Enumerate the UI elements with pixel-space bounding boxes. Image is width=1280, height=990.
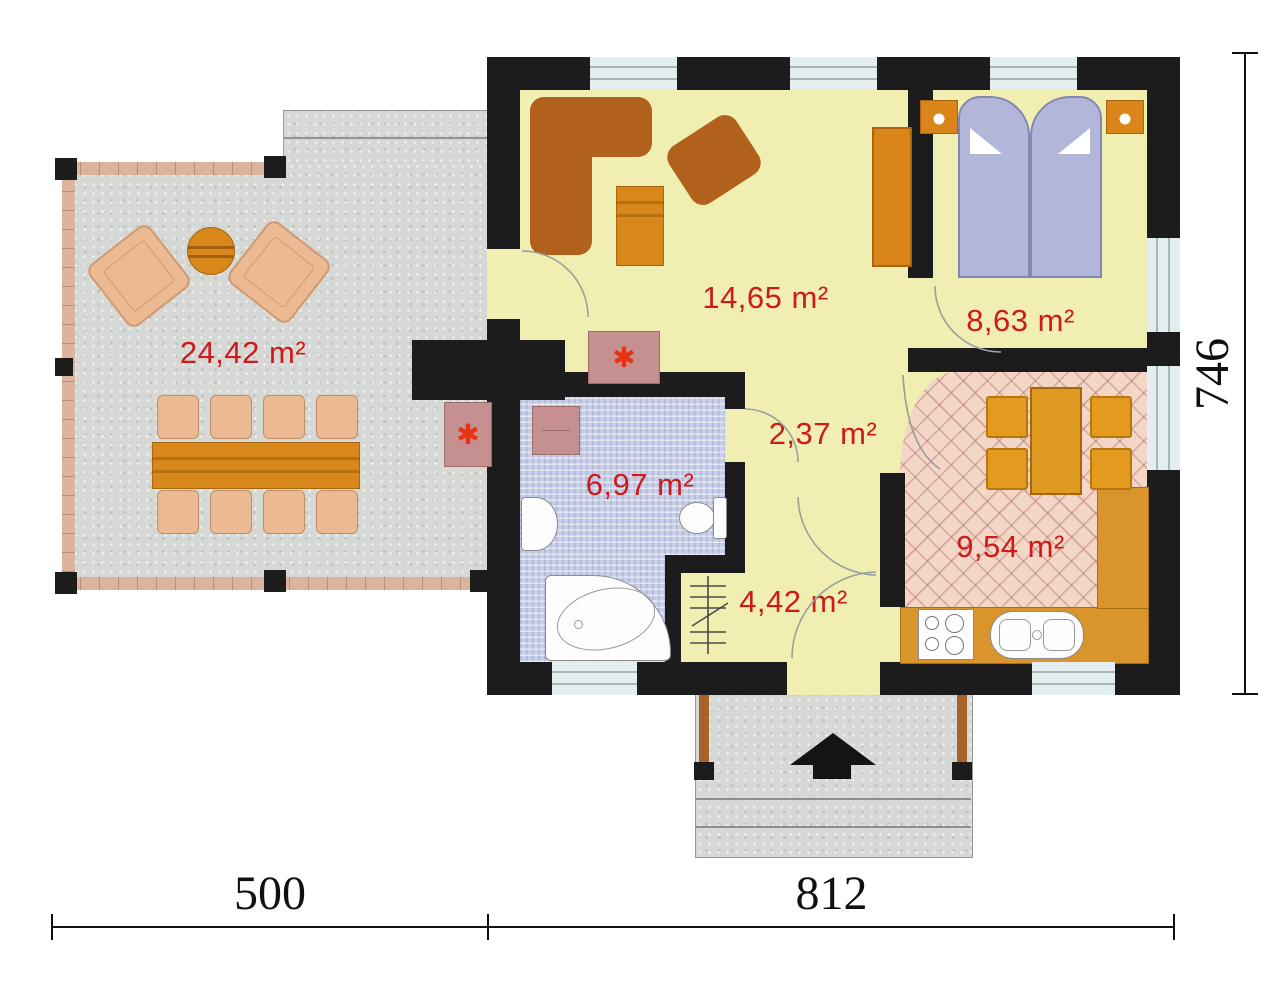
porch-step-line [695, 826, 971, 828]
living-room-area-label: 14,65 m² [638, 280, 893, 316]
dimension-tick [1232, 693, 1258, 695]
porch-post [699, 695, 709, 765]
terrace-chair [316, 395, 358, 439]
terrace-post [264, 156, 286, 178]
wall-entry-kitchen [880, 473, 905, 607]
washing-machine [532, 406, 580, 455]
walkway [283, 110, 489, 164]
sofa-corner-leg [530, 97, 592, 255]
dimension-house-height: 746 [1185, 314, 1235, 434]
living-wardrobe [872, 127, 912, 267]
porch-post-base [694, 762, 714, 780]
terrace-area-label: 24,42 m² [117, 335, 369, 371]
terrace-chair [263, 490, 305, 534]
terrace-post [264, 570, 286, 592]
entrance-arrow-icon [790, 733, 876, 765]
kitchen-sink [990, 611, 1084, 659]
dimension-line-bottom [52, 926, 1175, 928]
terrace-chair [210, 395, 252, 439]
terrace-grill: ✱ [444, 402, 492, 467]
nightstand [920, 100, 958, 134]
window-top-bedroom [990, 57, 1077, 90]
entry-area-label: 4,42 m² [716, 584, 871, 620]
window-bottom-kitchen [1032, 662, 1115, 695]
entrance-arrow-stem [813, 765, 851, 779]
bedroom-area-label: 8,63 m² [938, 303, 1103, 339]
terrace-chair [210, 490, 252, 534]
window-bottom-bathroom [552, 662, 637, 695]
terrace-chair [263, 395, 305, 439]
terrace-dining-table [152, 442, 360, 489]
kitchen-chair [986, 448, 1028, 490]
kitchen-chair [1090, 448, 1132, 490]
terrace-deck-border-left [62, 162, 75, 590]
terrace-chair [157, 490, 199, 534]
round-garden-table [187, 227, 235, 275]
wall-bedroom-kitchen [908, 348, 1147, 372]
double-bed [958, 96, 1102, 278]
fireplace-icon: ✱ [612, 344, 635, 372]
toilet-bowl [679, 502, 715, 534]
porch-post-base [952, 762, 972, 780]
dimension-tick [1232, 52, 1258, 54]
terrace-chair [157, 395, 199, 439]
living-fireplace: ✱ [588, 331, 660, 384]
nightstand [1106, 100, 1144, 134]
kitchen-counter-right [1097, 487, 1149, 609]
fireplace-icon: ✱ [456, 421, 479, 449]
dimension-line-right [1244, 53, 1246, 695]
wall-bathroom-right-stub [725, 397, 745, 409]
kitchen-chair [1090, 396, 1132, 438]
terrace-post [470, 570, 492, 592]
window-right-kitchen [1147, 366, 1180, 470]
terrace-post [55, 572, 77, 594]
floor-plan: ✱ 24,42 m² ✱ 14,65 m² [0, 0, 1280, 990]
terrace-door-opening [487, 249, 520, 319]
bathroom-area-label: 6,97 m² [565, 467, 715, 503]
hall-area-label: 2,37 m² [753, 416, 893, 452]
dimension-house-width: 812 [488, 866, 1175, 921]
kitchen-chair [986, 396, 1028, 438]
window-top-living-1 [590, 57, 677, 90]
porch-post [957, 695, 967, 765]
terrace-post [55, 158, 77, 180]
stove [918, 609, 974, 660]
terrace-deck-border-top [62, 162, 275, 175]
dimension-terrace-width: 500 [52, 866, 488, 921]
kitchen-area-label: 9,54 m² [928, 529, 1093, 565]
porch-step-line [695, 798, 971, 800]
window-top-living-2 [790, 57, 877, 90]
coffee-table [616, 186, 664, 266]
terrace-post [55, 358, 73, 376]
chimney-block [412, 340, 565, 400]
terrace-chair [316, 490, 358, 534]
toilet-tank [713, 497, 727, 539]
window-right-bedroom [1147, 238, 1180, 332]
kitchen-table [1030, 387, 1082, 495]
entry-door-opening [787, 662, 880, 695]
